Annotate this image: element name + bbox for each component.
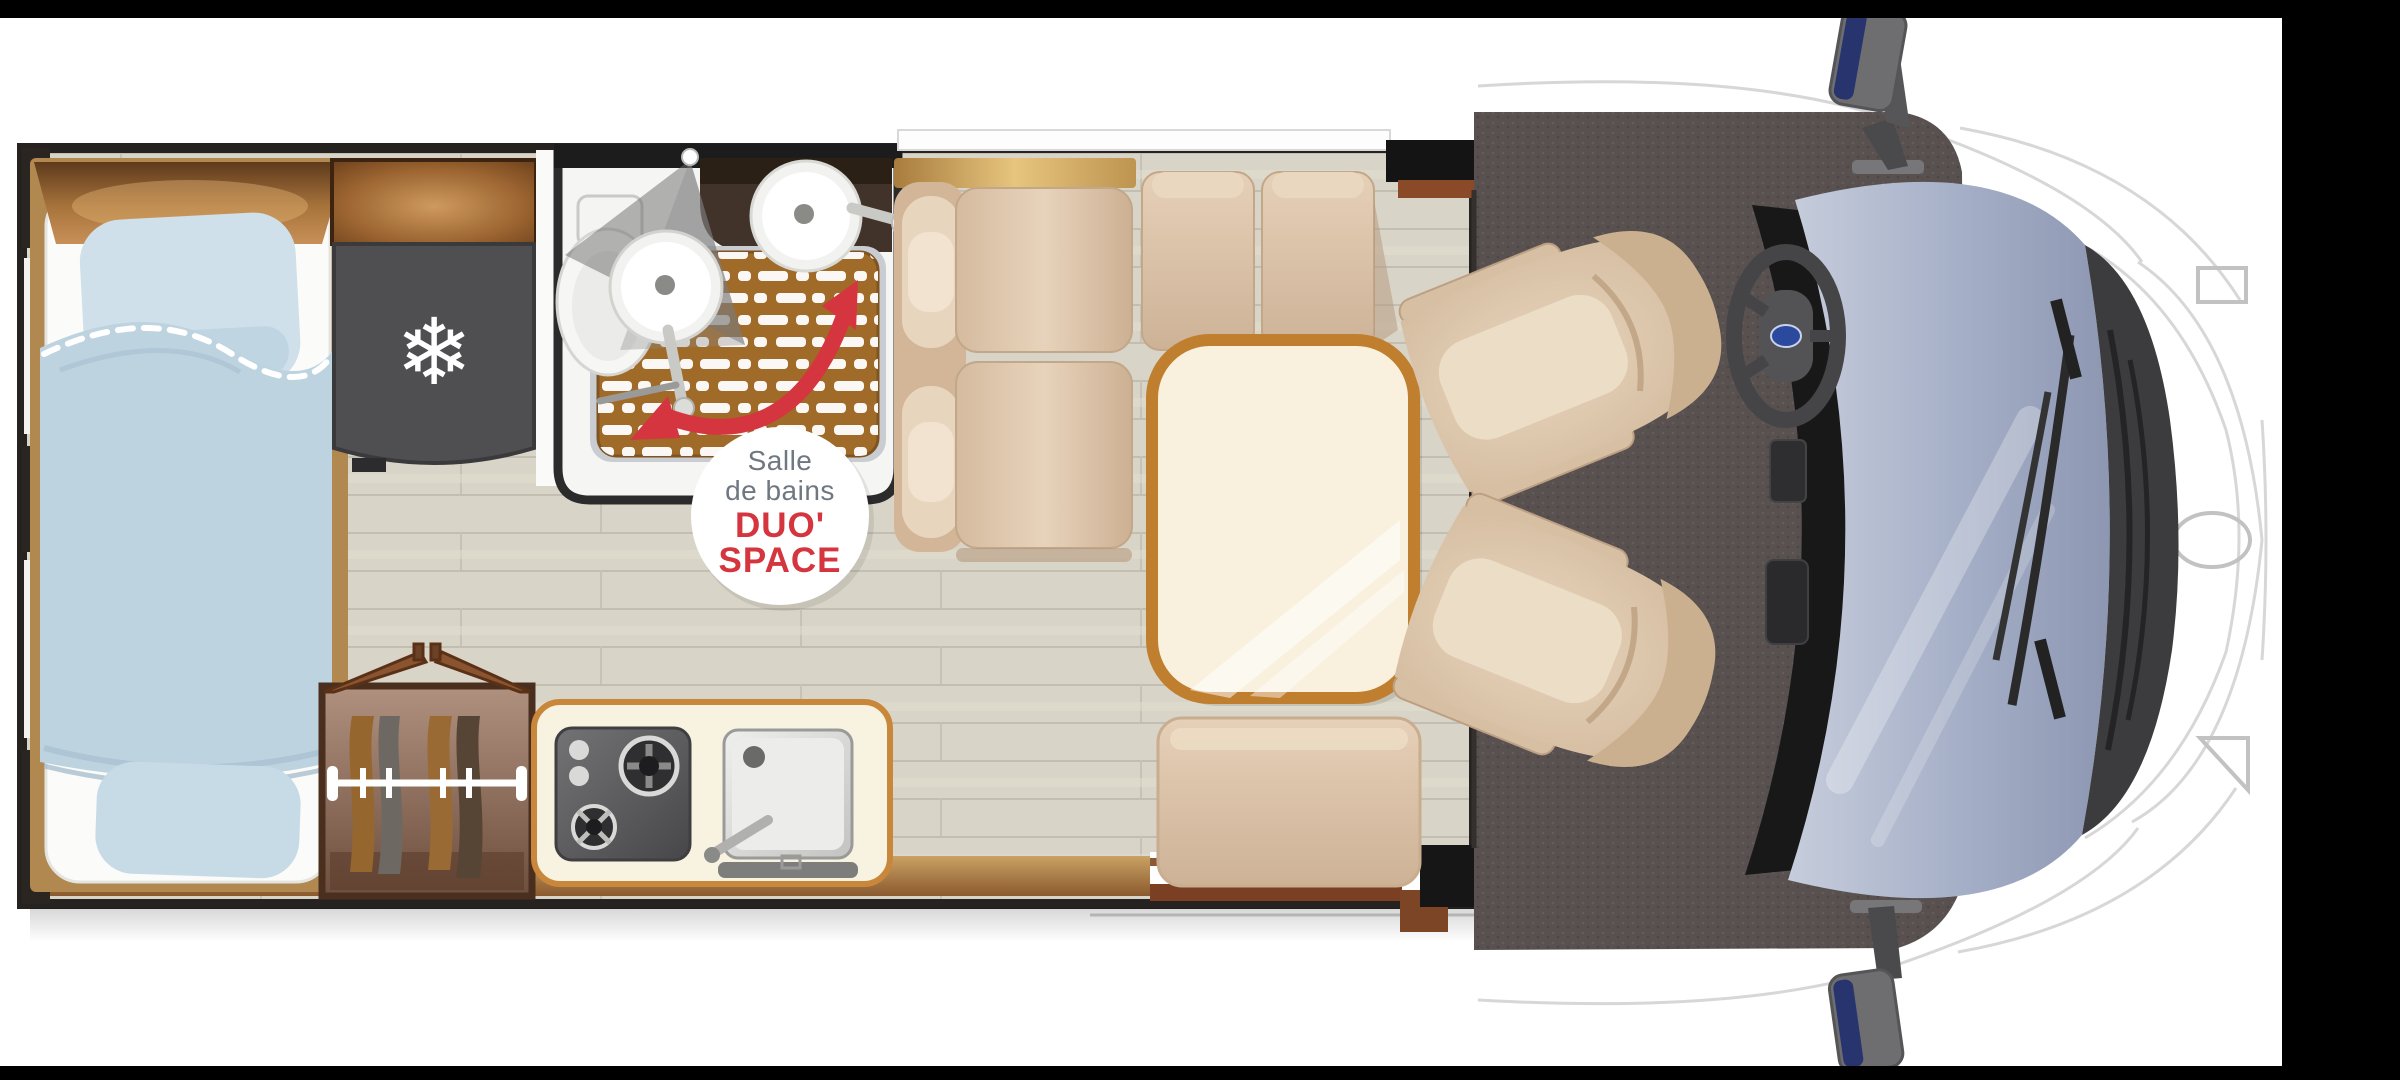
bench-backrest-cushion xyxy=(1142,172,1254,350)
dinette-table xyxy=(1152,340,1422,706)
hob xyxy=(556,728,690,860)
sink-drip-tray xyxy=(718,862,858,878)
hob-knob xyxy=(569,766,589,786)
hob-burner-large xyxy=(621,738,677,794)
badge-line-3: DUO' xyxy=(735,506,825,545)
sofa-seat-cushion xyxy=(956,188,1132,352)
bench-backrest-cushion xyxy=(1262,172,1374,350)
sofa-seat-cushion xyxy=(956,362,1132,548)
pillow-foot xyxy=(94,760,302,879)
side-bench xyxy=(1158,718,1420,886)
floorplan-image: ❄ xyxy=(0,0,2400,1080)
cab-area xyxy=(1380,112,2178,950)
cab-bulkhead xyxy=(1386,140,1476,198)
hob-knob xyxy=(569,740,589,760)
sofa xyxy=(894,182,1132,562)
fridge-unit: ❄ xyxy=(332,160,536,472)
travel-bench xyxy=(1142,172,1398,350)
sink-drain xyxy=(743,746,765,768)
steering-logo xyxy=(1771,325,1801,347)
badge-line-2: de bains xyxy=(725,475,835,506)
badge-line-1: Salle xyxy=(748,445,813,476)
floor-shadow xyxy=(30,908,1475,942)
kitchen xyxy=(534,702,890,884)
partition-hinge xyxy=(682,149,698,165)
snowflake-icon: ❄ xyxy=(395,299,472,406)
bed-area xyxy=(30,158,348,892)
duvet xyxy=(40,322,332,785)
badge-line-4: SPACE xyxy=(719,541,842,580)
window-strip xyxy=(898,130,1390,150)
hob-burner-small xyxy=(573,806,615,848)
fridge-top-counter xyxy=(332,160,536,244)
